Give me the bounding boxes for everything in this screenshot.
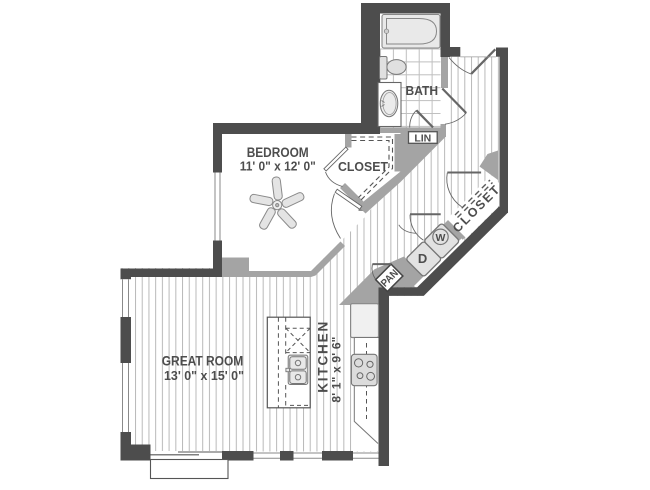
svg-text:KITCHEN: KITCHEN [316, 322, 331, 393]
svg-text:CLOSET: CLOSET [338, 159, 388, 174]
svg-text:BATH: BATH [406, 83, 439, 98]
svg-text:W: W [436, 232, 446, 244]
svg-text:8' 1" x 9' 6": 8' 1" x 9' 6" [329, 337, 343, 403]
svg-text:13' 0" x 15' 0": 13' 0" x 15' 0" [164, 368, 244, 383]
svg-text:LIN: LIN [414, 133, 431, 145]
svg-text:GREAT ROOM: GREAT ROOM [162, 354, 244, 369]
svg-text:D: D [418, 251, 427, 266]
svg-text:11' 0" x 12' 0": 11' 0" x 12' 0" [240, 159, 316, 174]
